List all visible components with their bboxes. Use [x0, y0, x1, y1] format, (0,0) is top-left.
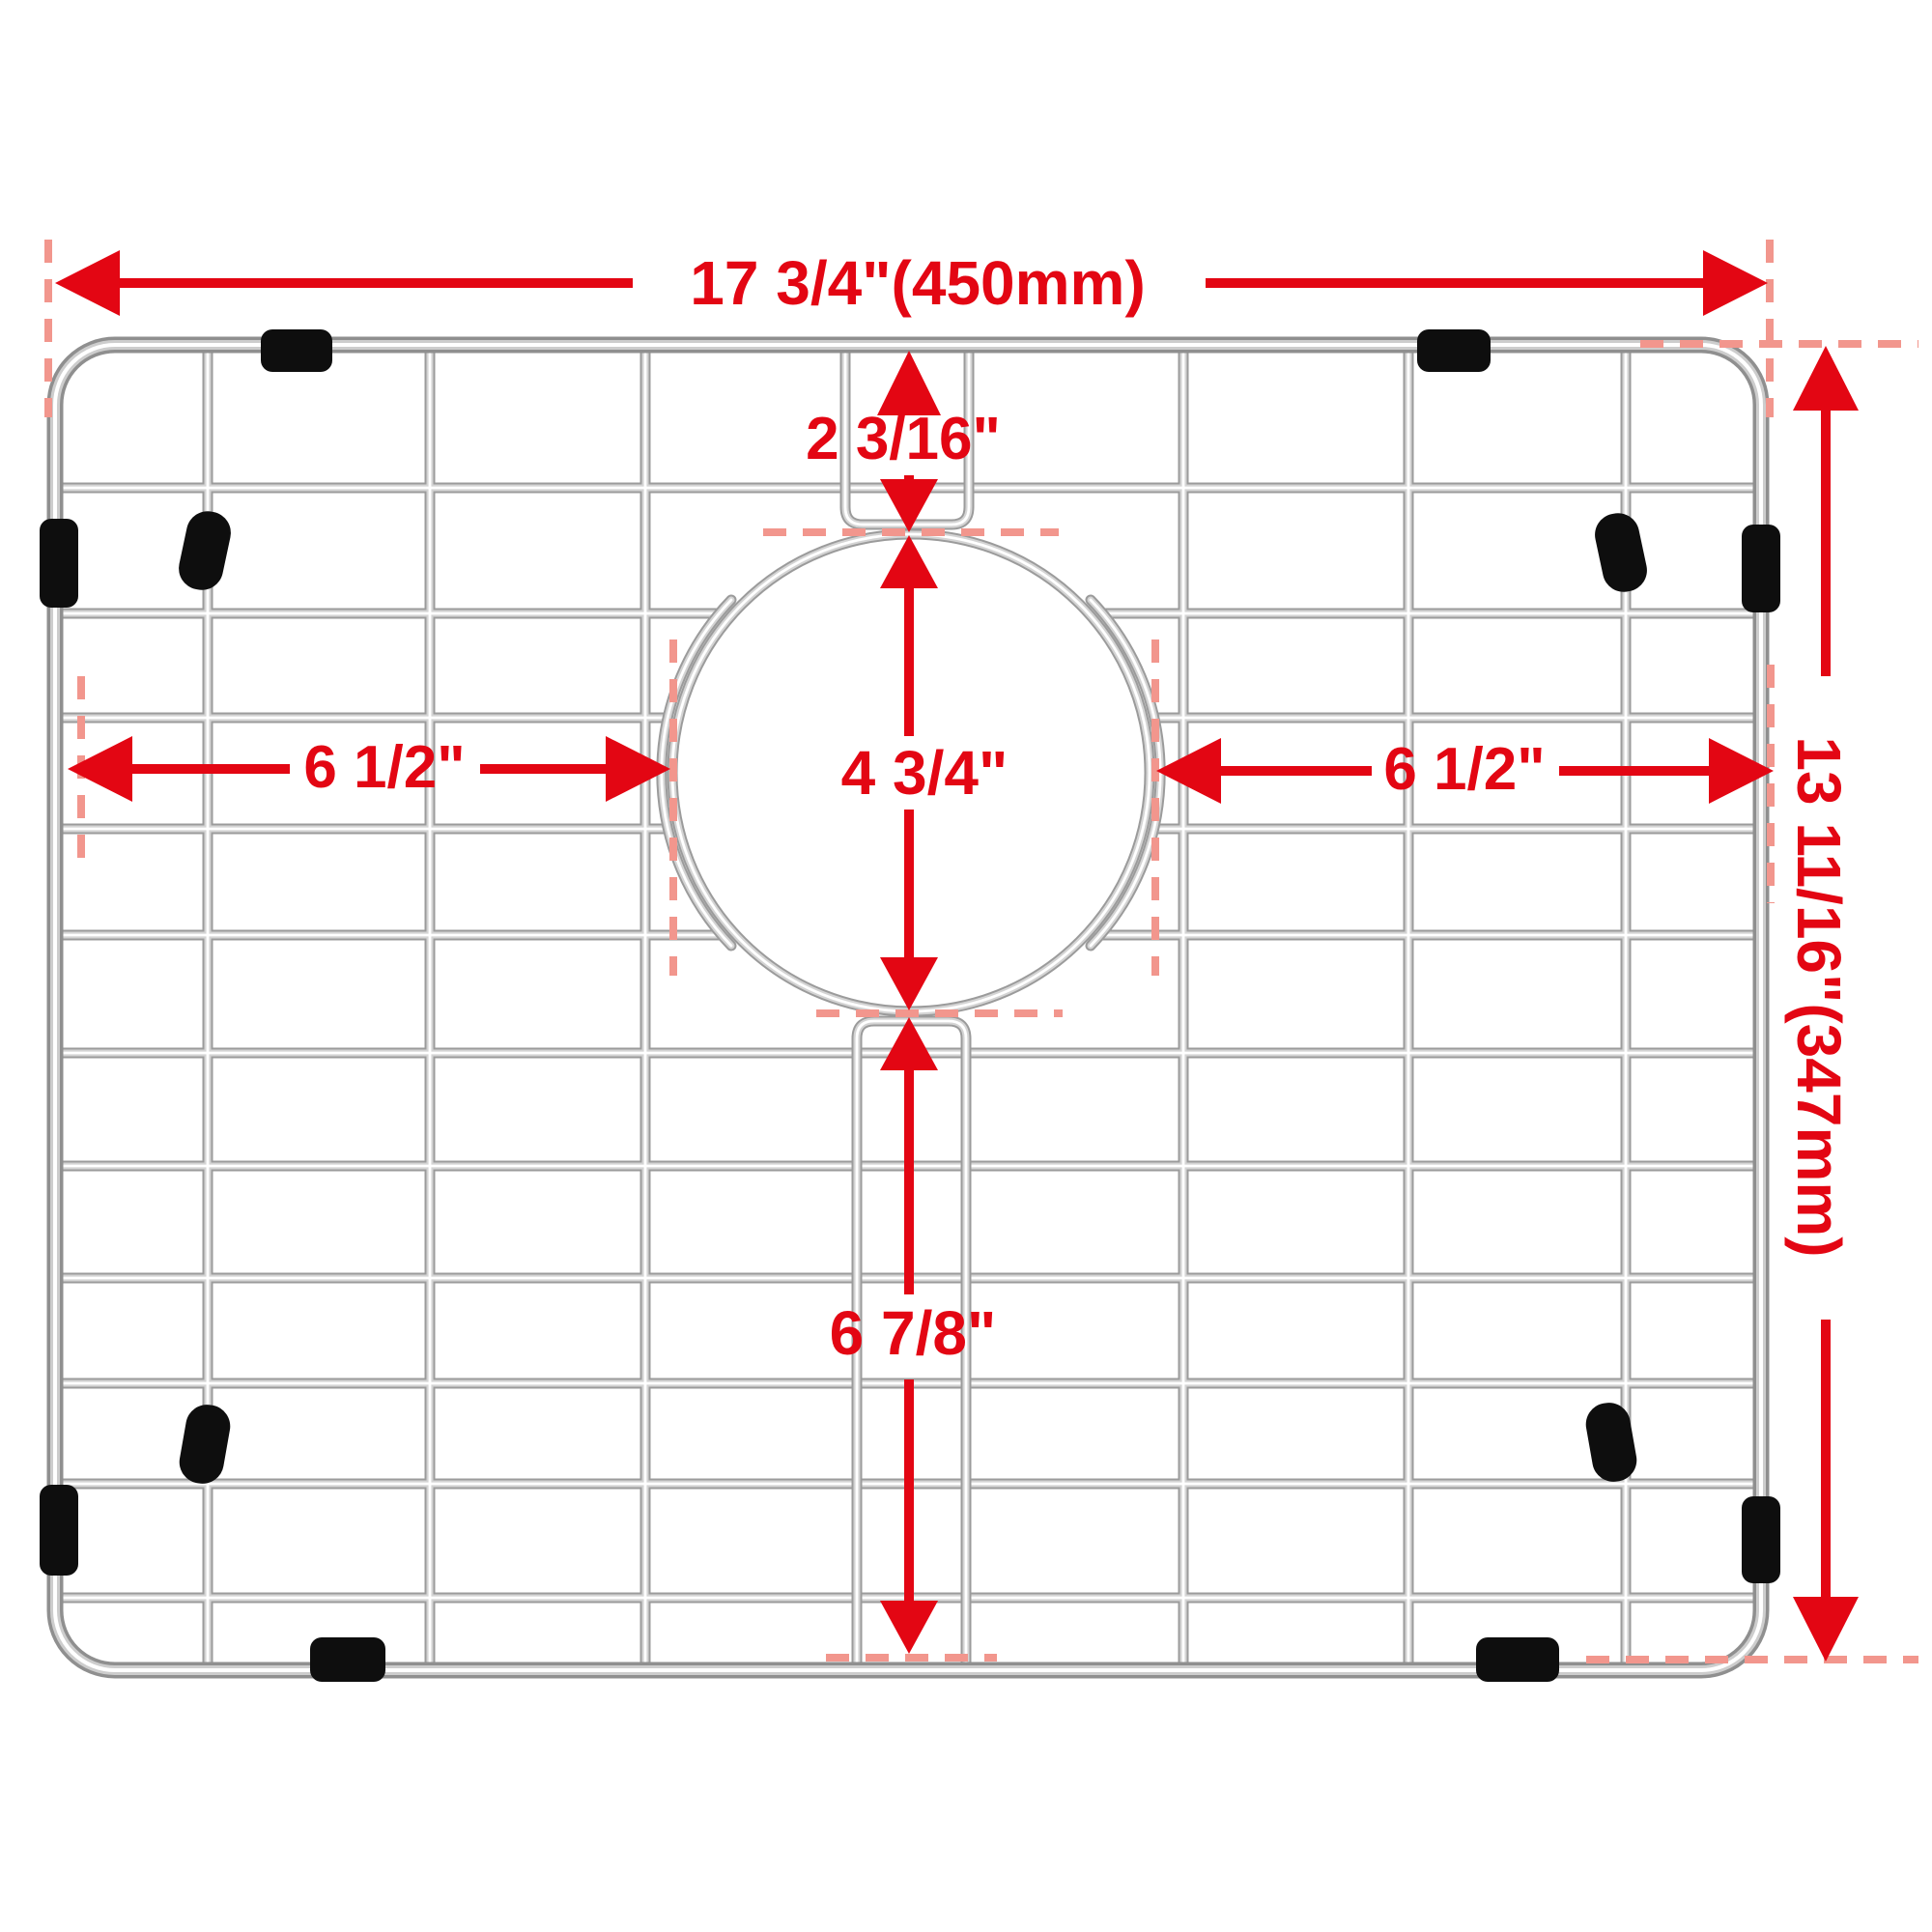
sink-grid-dimension-diagram: 17 3/4"(450mm) 2 3/16" 4 3/4" 6 7/8" 6 1… — [0, 0, 1932, 1932]
dimension-left-to-hole: 6 1/2" — [68, 639, 673, 976]
arrow-up-icon — [1793, 346, 1859, 411]
rubber-clip-upper-left — [175, 507, 235, 594]
top-to-hole-label: 2 3/16" — [806, 406, 1001, 472]
rubber-clip-lower-left — [176, 1402, 234, 1488]
rubber-bumper-right-upper — [1742, 525, 1780, 612]
dimension-hole-to-right: 6 1/2" — [1155, 639, 1774, 976]
overall-height-label: 13 11/16"(347mm) — [1784, 736, 1854, 1257]
hole-to-bottom-label: 6 7/8" — [830, 1298, 997, 1368]
arrow-down-icon — [1793, 1597, 1859, 1662]
arrow-right-icon — [1703, 250, 1768, 316]
rubber-foot-top-left — [261, 329, 332, 372]
hole-to-right-label: 6 1/2" — [1383, 736, 1545, 803]
rubber-bumper-left-lower — [40, 1485, 78, 1576]
arrow-down-icon — [880, 1601, 938, 1654]
dimension-hole-diameter: 4 3/4" — [763, 532, 1063, 1013]
dimension-diagram-page: 17 3/4"(450mm) 2 3/16" 4 3/4" 6 7/8" 6 1… — [0, 0, 1932, 1932]
rubber-foot-bottom-left — [310, 1637, 385, 1682]
rubber-clip-lower-right — [1582, 1400, 1640, 1486]
overall-width-label: 17 3/4"(450mm) — [690, 248, 1146, 318]
rubber-clip-upper-right — [1591, 509, 1651, 596]
arrow-down-icon — [880, 957, 938, 1010]
hole-diameter-label: 4 3/4" — [841, 738, 1009, 808]
arrow-up-icon — [880, 535, 938, 588]
rubber-bumper-left-upper — [40, 519, 78, 608]
arrow-left-icon — [55, 250, 120, 316]
arrow-left-icon — [68, 736, 132, 802]
rubber-foot-bottom-right — [1476, 1637, 1559, 1682]
left-to-hole-label: 6 1/2" — [303, 734, 465, 801]
rubber-foot-top-right — [1417, 329, 1491, 372]
rubber-bumper-right-lower — [1742, 1496, 1780, 1583]
